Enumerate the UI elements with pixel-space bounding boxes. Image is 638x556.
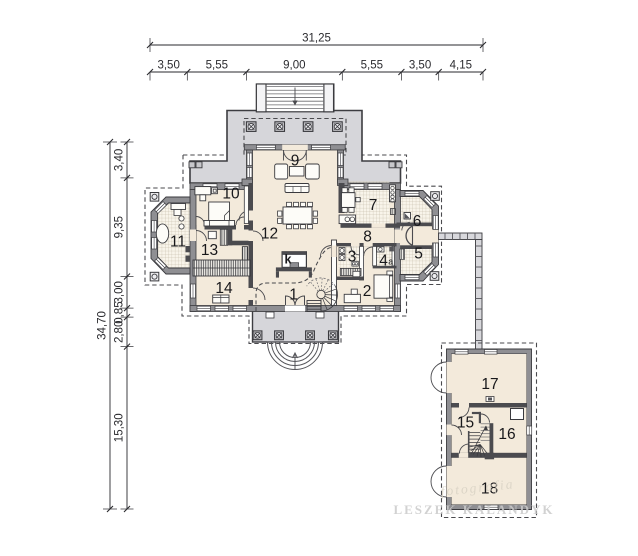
svg-text:3,50: 3,50 [409, 60, 431, 72]
svg-text:9,00: 9,00 [283, 60, 305, 72]
svg-text:4,15: 4,15 [450, 60, 472, 72]
svg-text:4: 4 [379, 252, 388, 269]
svg-text:2: 2 [363, 283, 372, 300]
svg-text:a: a [388, 257, 393, 267]
svg-text:13: 13 [201, 242, 218, 259]
svg-text:3: 3 [348, 248, 357, 265]
svg-text:0,85: 0,85 [114, 301, 126, 323]
svg-text:k: k [285, 253, 292, 267]
svg-text:2,80: 2,80 [114, 321, 126, 343]
svg-text:31,25: 31,25 [302, 33, 331, 45]
svg-text:17: 17 [481, 376, 498, 393]
svg-text:9,35: 9,35 [114, 216, 126, 238]
svg-text:8: 8 [363, 228, 372, 245]
svg-text:16: 16 [498, 426, 515, 443]
svg-text:34,70: 34,70 [97, 311, 109, 340]
svg-text:3,50: 3,50 [157, 60, 179, 72]
svg-text:5,55: 5,55 [206, 60, 228, 72]
svg-text:12: 12 [261, 225, 278, 242]
svg-text:11: 11 [170, 233, 186, 250]
svg-text:14: 14 [215, 280, 233, 297]
svg-text:9: 9 [291, 152, 300, 169]
svg-text:7: 7 [369, 197, 378, 214]
svg-text:5: 5 [414, 245, 423, 262]
svg-text:10: 10 [222, 185, 240, 202]
svg-text:1: 1 [289, 286, 298, 303]
svg-text:3,40: 3,40 [114, 149, 126, 171]
svg-text:5,55: 5,55 [361, 60, 383, 72]
svg-text:3,00: 3,00 [114, 281, 126, 303]
svg-text:LESZEK KALANDYK: LESZEK KALANDYK [393, 502, 554, 517]
svg-text:6: 6 [413, 213, 422, 230]
svg-text:15,30: 15,30 [114, 413, 126, 442]
svg-text:15: 15 [457, 414, 474, 431]
